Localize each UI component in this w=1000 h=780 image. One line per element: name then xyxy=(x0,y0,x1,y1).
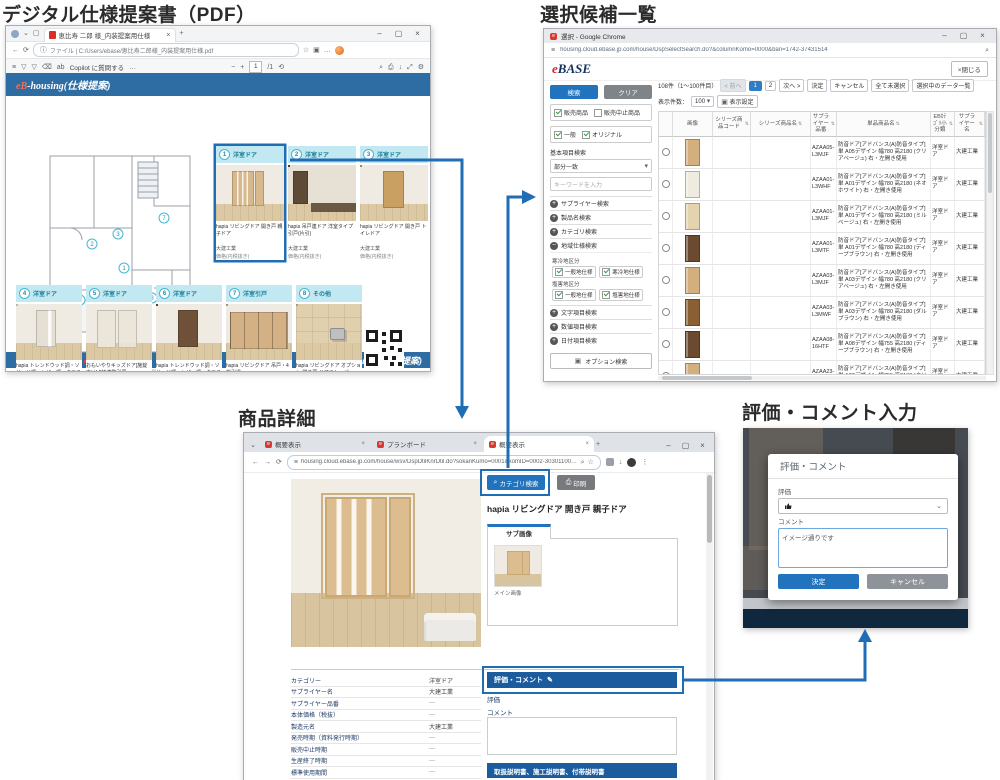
close-button[interactable]: × xyxy=(975,30,990,42)
table-row[interactable]: AZAA05-L3MJF防音ドア[アドバンス(A)防音タイプ] 単 A05デザイ… xyxy=(659,137,985,169)
comment-label: コメント xyxy=(487,707,513,717)
tab-overview-1[interactable]: e 概要表示 × xyxy=(260,436,370,452)
series-code-cell xyxy=(713,201,751,232)
window-title: 選択 - Google Chrome xyxy=(561,31,626,41)
column-header[interactable]: 画像 xyxy=(673,112,713,137)
product-card[interactable]: 6洋室ドアhapia トレンドウッド調・ソリッド調・レザー調・クロス調 リビング… xyxy=(156,285,222,372)
product-photo xyxy=(291,479,481,647)
product-name-cell: 防音ドア[アドバンス(A)防音タイプ] 単 A01デザイン 幅780 高2180… xyxy=(837,201,931,232)
series-name-cell xyxy=(751,361,811,375)
field-value: — xyxy=(429,735,435,741)
product-photo xyxy=(86,304,152,360)
card-product-name: hapia トレンドウッド調・ソリッド調・レザー調・クロス調 リビングドア 開き… xyxy=(16,363,82,372)
supplier-part-number-cell: AZAA01-L3WHF xyxy=(811,169,837,200)
product-name-cell: 防音ドア[アドバンス(A)防音タイプ] 単 A03デザイン 幅780 高2180… xyxy=(837,265,931,296)
product-thumbnail xyxy=(685,331,700,358)
category-search-button[interactable]: ⌕カテゴリ検索 xyxy=(487,475,545,490)
product-card[interactable]: 5洋室ドアおもいやりキッズドア[施錠向け] 2枚連動引戸大建工業価格(内税設定) xyxy=(86,285,152,372)
series-code-cell xyxy=(713,361,751,375)
ok-button[interactable]: 決定 xyxy=(778,574,859,589)
product-photo xyxy=(296,304,362,360)
url-text[interactable]: housing.cloud.ebase.jp.com/house/DspSele… xyxy=(560,47,980,53)
expand-icon: + xyxy=(550,309,558,317)
clear-button[interactable]: クリア xyxy=(604,85,652,99)
accordion-supplier[interactable]: +サプライヤー検索 xyxy=(550,196,652,210)
card-product-name: hapia リビングドア 開き戸 トイレドア xyxy=(360,224,428,243)
product-card[interactable]: 3洋室ドアhapia リビングドア 開き戸 トイレドア大建工業価格(内税抜き) xyxy=(360,146,428,260)
accordion-number[interactable]: +数値項目検索 xyxy=(550,319,652,333)
next-page-button[interactable]: 次へ > xyxy=(779,79,804,92)
card-price-note: 価格(内税抜き) xyxy=(216,253,284,260)
field-value: — xyxy=(429,700,435,706)
card-number: 3 xyxy=(363,149,374,160)
list-controls: 108件（1～100件目） < 前へ 1 2 次へ > 決定 キャンセル 全て未… xyxy=(658,79,986,111)
thumbnail-caption: メイン画像 xyxy=(494,589,671,597)
candidate-table: 画像シリーズ商品コード⇅シリーズ商品名⇅サプライヤー品番⇅単品商品名⇅EBｶﾃｺ… xyxy=(658,111,986,375)
category-cell: 洋室ドア xyxy=(931,329,955,360)
product-cards: 1洋室ドアhapia リビングドア 開き戸 親子ドア大建工業価格(内税抜き)2洋… xyxy=(6,26,430,372)
tune-icon: ≡ xyxy=(294,459,298,466)
product-photo xyxy=(360,165,428,221)
product-card[interactable]: 1洋室ドアhapia リビングドア 開き戸 親子ドア大建工業価格(内税抜き) xyxy=(216,146,284,260)
category-cell: 洋室ドア xyxy=(931,297,955,328)
page-favicon: e xyxy=(550,33,557,40)
titlebar: e 選択 - Google Chrome – ▢ × xyxy=(544,29,996,43)
table-row[interactable]: AZAA01-L3MTF防音ドア[アドバンス(A)防音タイプ] 単 A01デザイ… xyxy=(659,233,985,265)
sort-icon[interactable]: ⇅ xyxy=(745,121,749,127)
field-row: 本体価格（税抜）— xyxy=(291,710,481,722)
heading-pdf: デジタル仕様提案書（PDF） xyxy=(2,0,256,27)
card-number: 8 xyxy=(299,288,310,299)
search-icon[interactable]: ⌕ xyxy=(985,47,989,54)
row-radio[interactable] xyxy=(662,276,670,284)
product-name-cell: 防音ドア[アドバンス(A)防音タイプ] 単 A01デザイン 幅780 高2180… xyxy=(837,233,931,264)
field-value: — xyxy=(429,746,435,752)
series-name-cell xyxy=(751,169,811,200)
new-tab-icon[interactable]: + xyxy=(596,441,600,448)
maximize-button[interactable]: ▢ xyxy=(956,30,971,42)
option-search-button[interactable]: ▣ オプション検索 xyxy=(550,353,652,369)
supplier-name-cell: 大建工業 xyxy=(955,233,985,264)
supplier-part-number-cell: AZAA01-L3MTF xyxy=(811,233,837,264)
field-label: 製造元名 xyxy=(291,722,429,731)
ebase-favicon: e xyxy=(377,441,384,448)
tab-planboard[interactable]: e プランボード × xyxy=(372,436,482,452)
vertical-scrollbar[interactable] xyxy=(986,111,994,375)
category-cell: 洋室ドア xyxy=(931,233,955,264)
field-label: 本体価格（税抜） xyxy=(291,710,429,719)
url-bar: ← → ⟳ ≡ housing.cloud.ebase.jp.com/house… xyxy=(244,452,714,473)
checkbox-cold-cold[interactable]: 寒冷地仕様 xyxy=(599,266,643,278)
canvas: デジタル仕様提案書（PDF） 選択候補一覧 商品詳細 評価・コメント入力 ⌄ ▢… xyxy=(0,0,1000,780)
rating-dialog-panel: 評価・コメント 評価 ⌄ コメント イメージ通りです 決定 キャンセル xyxy=(743,428,968,628)
minimize-button[interactable]: – xyxy=(937,30,952,42)
search-icon: ⌕ xyxy=(494,479,498,486)
dimmed-bottom-bar xyxy=(743,609,968,628)
supplier-name-cell: 大建工業 xyxy=(955,169,985,200)
accordion-date[interactable]: +日付項目検索 xyxy=(550,333,652,347)
field-row: 生産終了時期— xyxy=(291,756,481,768)
card-number: 6 xyxy=(159,288,170,299)
column-header[interactable]: EBｶﾃｺﾞﾘ小分類⇅ xyxy=(931,112,955,137)
heading-detail: 商品詳細 xyxy=(238,404,316,431)
card-maker: 大建工業 xyxy=(360,245,428,252)
product-thumbnail xyxy=(685,235,700,262)
profile-avatar[interactable] xyxy=(627,458,636,467)
card-maker: 大建工業 xyxy=(216,245,284,252)
series-code-cell xyxy=(713,169,751,200)
cancel-button[interactable]: キャンセル xyxy=(867,574,948,589)
field-label: サプライヤー品番 xyxy=(291,699,429,708)
card-price-note: 価格(内税抜き) xyxy=(288,253,356,260)
product-name-cell: 防音ドア[アドバンス(A)防音タイプ] 単 A23デザイン 幅755 高2180… xyxy=(837,361,931,375)
card-maker: 大建工業 xyxy=(288,245,356,252)
tab-close-icon[interactable]: × xyxy=(585,441,589,447)
accordion-category[interactable]: +カテゴリ検索 xyxy=(550,224,652,238)
tab-search-icon[interactable]: ⌄ xyxy=(248,441,258,449)
series-name-cell xyxy=(751,233,811,264)
row-radio[interactable] xyxy=(662,244,670,252)
arrow-detail-to-selection xyxy=(508,197,522,468)
product-title: hapia リビングドア 開き戸 親子ドア xyxy=(487,503,678,515)
table-row[interactable]: AZAA01-L3WHF防音ドア[アドバンス(A)防音タイプ] 単 A01デザイ… xyxy=(659,169,985,201)
accordion-text[interactable]: +文字項目検索 xyxy=(550,305,652,319)
card-price-note: 価格(内税抜き) xyxy=(360,253,428,260)
product-thumbnail xyxy=(685,267,700,294)
product-thumbnail xyxy=(685,299,700,326)
sort-icon[interactable]: ⇅ xyxy=(979,121,983,127)
external-icon: ▣ xyxy=(575,358,582,365)
product-photo xyxy=(16,304,82,360)
field-label: カテゴリー xyxy=(291,676,429,685)
card-product-name: おもいやりキッズドア[施錠向け] 2枚連動引戸 xyxy=(86,363,152,372)
caret-down-icon: ▾ xyxy=(707,98,711,105)
card-tag: 4洋室ドア xyxy=(16,285,82,302)
product-photo xyxy=(288,165,356,221)
forward-icon[interactable]: → xyxy=(264,459,271,466)
heading-rating: 評価・コメント入力 xyxy=(742,398,918,425)
series-code-cell xyxy=(713,233,751,264)
field-label: 生産終了時期 xyxy=(291,756,429,765)
comment-label: コメント xyxy=(778,516,948,526)
field-label: 標準使用期間 xyxy=(291,768,429,777)
product-card[interactable]: 7洋室引戸hapia リビングドア 吊戸・4枚引違大建工業価格(内税設定) xyxy=(226,285,292,372)
supplier-part-number-cell: AZAA03-L3MWF xyxy=(811,297,837,328)
row-radio[interactable] xyxy=(662,180,670,188)
vertical-scrollbar[interactable] xyxy=(706,473,713,780)
field-row: サプライヤー品番— xyxy=(291,698,481,710)
keyword-input[interactable]: キーワードを入力 xyxy=(550,177,652,191)
column-header[interactable]: サプライヤー名⇅ xyxy=(955,112,985,137)
series-name-cell xyxy=(751,201,811,232)
supplier-part-number-cell: AZAA03-L3MJF xyxy=(811,265,837,296)
detail-right-column: ⌕カテゴリ検索 ⎙印刷 hapia リビングドア 開き戸 親子ドア サブ画像 メ… xyxy=(487,475,678,626)
result-count: 108件（1～100件目） xyxy=(658,81,717,90)
row-radio[interactable] xyxy=(662,308,670,316)
column-header[interactable]: シリーズ商品名⇅ xyxy=(751,112,811,137)
rating-comment-bar[interactable]: 評価・コメント ✎ xyxy=(487,672,677,688)
selection-window: e 選択 - Google Chrome – ▢ × ≡ housing.clo… xyxy=(543,28,997,382)
column-header[interactable]: サプライヤー品番⇅ xyxy=(811,112,837,137)
accordion-product[interactable]: +製品名検索 xyxy=(550,210,652,224)
product-thumbnail xyxy=(685,171,700,198)
bookmark-icon[interactable]: ☆ xyxy=(588,459,594,466)
divider xyxy=(291,669,679,670)
tab-strip: ⌄ e 概要表示 × e プランボード × e 概要表示 × + – ▢ × xyxy=(244,433,714,452)
select-column-header xyxy=(659,112,673,137)
supplier-name-cell: 大建工業 xyxy=(955,361,985,375)
table-row[interactable]: AZAA03-L3MWF防音ドア[アドバンス(A)防音タイプ] 単 A03デザイ… xyxy=(659,297,985,329)
ebase-logo: eBASE xyxy=(552,61,591,77)
app-header: eBASE ×閉じる xyxy=(544,58,996,81)
series-name-cell xyxy=(751,137,811,168)
card-number: 7 xyxy=(229,288,240,299)
product-name-cell: 防音ドア[アドバンス(A)防音タイプ] 単 A05デザイン 幅780 高2180… xyxy=(837,137,931,168)
rating-label: 評価 xyxy=(487,694,500,704)
comment-textarea[interactable]: イメージ通りです xyxy=(778,528,948,568)
sofa xyxy=(424,613,476,641)
sort-icon[interactable]: ⇅ xyxy=(896,121,900,127)
salt-region-label: 塩害地区分 xyxy=(552,280,652,288)
table-body: AZAA05-L3MJF防音ドア[アドバンス(A)防音タイプ] 単 A05デザイ… xyxy=(659,137,985,375)
category-cell: 洋室ドア xyxy=(931,201,955,232)
prev-page-button[interactable]: < 前へ xyxy=(720,79,745,92)
url-bar: ≡ housing.cloud.ebase.jp.com/house/DspSe… xyxy=(544,43,996,58)
display-settings-button[interactable]: ▣ 表示設定 xyxy=(717,95,757,108)
field-row: 販売中止時期— xyxy=(291,744,481,756)
pencil-icon: ✎ xyxy=(547,677,553,684)
rating-label: 評価 xyxy=(778,486,948,496)
checkbox-salt-salt[interactable]: 塩害地仕様 xyxy=(599,289,643,301)
close-page-button[interactable]: ×閉じる xyxy=(951,61,988,77)
checkbox-salt-general[interactable]: 一般地仕様 xyxy=(552,289,596,301)
card-tag: 5洋室ドア xyxy=(86,285,152,302)
category-cell: 洋室ドア xyxy=(931,137,955,168)
table-row[interactable]: AZAA01-L3MJF防音ドア[アドバンス(A)防音タイプ] 単 A01デザイ… xyxy=(659,201,985,233)
collapse-icon: − xyxy=(550,242,558,250)
supplier-name-cell: 大建工業 xyxy=(955,329,985,360)
checkbox-general[interactable]: 一般 xyxy=(554,130,576,139)
caret-down-icon: ⌄ xyxy=(936,503,942,510)
category-cell: 洋室ドア xyxy=(931,361,955,375)
pdf-viewer-window: ⌄ ▢ 恵比寿 二郎 様_内装提案用仕様 × + – ▢ × ← ⟳ ⓘ ファイ… xyxy=(5,25,431,372)
extensions-icon[interactable] xyxy=(606,458,614,466)
field-row: 標準使用期間— xyxy=(291,767,481,779)
tune-icon[interactable]: ≡ xyxy=(551,47,555,54)
address-field[interactable]: ≡ housing.cloud.ebase.jp.com/house/wsv/D… xyxy=(287,455,601,470)
page-1-button[interactable]: 1 xyxy=(749,81,762,91)
print-icon: ⎙ xyxy=(566,479,572,486)
product-thumbnail xyxy=(685,139,700,166)
display-settings-icon: ▣ xyxy=(721,99,728,106)
card-tag: 2洋室ドア xyxy=(288,146,356,163)
print-button[interactable]: ⎙印刷 xyxy=(557,475,595,490)
region-filters: 寒冷地区分 一般地仕様 寒冷地仕様 塩害地区分 一般地仕様 塩害地仕様 xyxy=(550,252,652,305)
table-row[interactable]: AZAA03-L3MJF防音ドア[アドバンス(A)防音タイプ] 単 A03デザイ… xyxy=(659,265,985,297)
field-value: — xyxy=(429,758,435,764)
series-code-cell xyxy=(713,329,751,360)
product-name-cell: 防音ドア[アドバンス(A)防音タイプ] 単 A01デザイン 幅780 高2180… xyxy=(837,169,931,200)
card-product-name: hapia リビングドア 開き戸 親子ドア xyxy=(216,224,284,243)
product-card[interactable]: 4洋室ドアhapia トレンドウッド調・ソリッド調・レザー調・クロス調 リビング… xyxy=(16,285,82,372)
table-header-row: 画像シリーズ商品コード⇅シリーズ商品名⇅サプライヤー品番⇅単品商品名⇅EBｶﾃｺ… xyxy=(659,112,985,137)
accordion-region[interactable]: −地域仕様検索 xyxy=(550,238,652,252)
menu-icon[interactable]: ⋮ xyxy=(641,459,648,466)
field-label: 発売時期（資料発行時期） xyxy=(291,733,429,742)
cold-region-label: 寒冷地区分 xyxy=(552,257,652,265)
series-code-cell xyxy=(713,265,751,296)
horizontal-scrollbar[interactable] xyxy=(658,376,986,380)
card-number: 1 xyxy=(219,149,230,160)
rating-dialog: 評価・コメント 評価 ⌄ コメント イメージ通りです 決定 キャンセル xyxy=(768,454,958,600)
page-2-button[interactable]: 2 xyxy=(765,81,776,91)
expand-icon: + xyxy=(550,337,558,345)
rating-select[interactable]: ⌄ xyxy=(778,498,948,514)
field-label: サプライヤー名 xyxy=(291,687,429,696)
cancel-button[interactable]: キャンセル xyxy=(830,79,868,92)
checkbox-on-sale[interactable]: 販売商品 xyxy=(554,108,588,117)
checkbox-original[interactable]: オリジナル xyxy=(582,130,622,139)
download-icon[interactable]: ↓ xyxy=(619,459,623,466)
series-code-cell xyxy=(713,297,751,328)
supplier-name-cell: 大建工業 xyxy=(955,137,985,168)
detail-window: ⌄ e 概要表示 × e プランボード × e 概要表示 × + – ▢ × xyxy=(243,432,715,780)
card-tag: 8その他 xyxy=(296,285,362,302)
row-radio[interactable] xyxy=(662,372,670,375)
comment-display-box xyxy=(487,717,677,755)
tab-close-icon[interactable]: × xyxy=(361,441,365,447)
product-name-cell: 防音ドア[アドバンス(A)防音タイプ] 単 A03デザイン 幅780 高2180… xyxy=(837,297,931,328)
close-button[interactable]: × xyxy=(695,440,710,452)
card-product-name: hapia リビングドア オプション 開き戸 ドアストッパー xyxy=(296,363,362,372)
sub-image-tab[interactable]: サブ画像 xyxy=(487,524,551,539)
search-sidebar: 検索 クリア 販売商品 販売中止商品 一般 オリジナル 基本項目検索 部分一致 … xyxy=(550,85,652,369)
product-name-cell: 防音ドア[アドバンス(A)防音タイプ] 単 A08デザイン 幅755 高2180… xyxy=(837,329,931,360)
field-value: — xyxy=(429,712,435,718)
category-cell: 洋室ドア xyxy=(931,265,955,296)
match-type-select[interactable]: 部分一致 ▾ xyxy=(550,159,652,173)
sort-icon[interactable]: ⇅ xyxy=(798,121,802,127)
row-radio[interactable] xyxy=(662,212,670,220)
supplier-name-cell: 大建工業 xyxy=(955,201,985,232)
card-number: 4 xyxy=(19,288,30,299)
decide-button[interactable]: 決定 xyxy=(807,79,827,92)
sub-image-thumbnail[interactable] xyxy=(494,545,542,587)
expand-icon: + xyxy=(550,200,558,208)
checkbox-cold-general[interactable]: 一般地仕様 xyxy=(552,266,596,278)
search-icon[interactable]: ⌕ xyxy=(581,459,585,466)
field-row: 発売時期（資料発行時期）— xyxy=(291,733,481,745)
per-page-select[interactable]: 100 ▾ xyxy=(691,96,714,107)
supplier-part-number-cell: AZAA08-16HTF xyxy=(811,329,837,360)
tab-overview-2[interactable]: e 概要表示 × xyxy=(484,436,594,452)
card-tag: 6洋室ドア xyxy=(156,285,222,302)
series-code-cell xyxy=(713,137,751,168)
product-card[interactable]: 2洋室ドアhapia 吊戸連ドア 洋室タイプ 引戸(片引)大建工業価格(内税抜き… xyxy=(288,146,356,260)
sort-icon[interactable]: ⇅ xyxy=(831,121,835,127)
manuals-bar[interactable]: 取扱説明書、施工説明書、付帯説明書 xyxy=(487,763,677,778)
card-product-name: hapia トレンドウッド調・ソリッド調・レザー調・クロス調 リビングドア 開き… xyxy=(156,363,222,372)
card-tag: 1洋室ドア xyxy=(216,146,284,163)
category-cell: 洋室ドア xyxy=(931,169,955,200)
card-product-name: hapia 吊戸連ドア 洋室タイプ 引戸(片引) xyxy=(288,224,356,243)
product-card[interactable]: 8その他hapia リビングドア オプション 開き戸 ドアストッパー大建工業価格… xyxy=(296,285,362,372)
sub-image-panel: メイン画像 xyxy=(487,538,678,626)
column-header[interactable]: 単品商品名⇅ xyxy=(837,112,931,137)
supplier-part-number-cell: AZAA01-L3MJF xyxy=(811,201,837,232)
selected-list-button[interactable]: 選択中のデータ一覧 xyxy=(912,79,974,92)
thumbs-up-icon xyxy=(784,502,792,510)
row-radio[interactable] xyxy=(662,148,670,156)
product-thumbnail xyxy=(685,363,700,375)
column-header[interactable]: シリーズ商品コード⇅ xyxy=(713,112,751,137)
product-photo xyxy=(226,304,292,360)
expand-icon: + xyxy=(550,214,558,222)
field-row: サプライヤー名大建工業 xyxy=(291,687,481,699)
minimize-button[interactable]: – xyxy=(661,440,676,452)
product-fields: カテゴリー洋室ドアサプライヤー名大建工業サプライヤー品番—本体価格（税抜）—製造… xyxy=(291,675,481,780)
table-row[interactable]: AZAA23-L4MJF防音ドア[アドバンス(A)防音タイプ] 単 A23デザイ… xyxy=(659,361,985,375)
series-name-cell xyxy=(751,329,811,360)
supplier-part-number-cell: AZAA05-L3MJF xyxy=(811,137,837,168)
card-tag: 7洋室引戸 xyxy=(226,285,292,302)
series-name-cell xyxy=(751,265,811,296)
field-row: 製造元名大建工業 xyxy=(291,721,481,733)
per-page-label: 表示件数： xyxy=(658,97,688,106)
tab-close-icon[interactable]: × xyxy=(473,441,477,447)
expand-icon: + xyxy=(550,323,558,331)
field-value: — xyxy=(429,769,435,775)
supplier-part-number-cell: AZAA23-L4MJF xyxy=(811,361,837,375)
basic-search-label: 基本項目検索 xyxy=(550,148,652,157)
expand-icon: + xyxy=(550,228,558,236)
row-radio[interactable] xyxy=(662,340,670,348)
table-row[interactable]: AZAA08-16HTF防音ドア[アドバンス(A)防音タイプ] 単 A08デザイ… xyxy=(659,329,985,361)
unselect-all-button[interactable]: 全て未選択 xyxy=(871,79,909,92)
product-photo xyxy=(216,165,284,221)
field-value: 大建工業 xyxy=(429,687,453,696)
product-thumbnail xyxy=(685,203,700,230)
field-label: 販売中止時期 xyxy=(291,745,429,754)
supplier-name-cell: 大建工業 xyxy=(955,265,985,296)
field-row: カテゴリー洋室ドア xyxy=(291,675,481,687)
ebase-favicon: e xyxy=(265,441,272,448)
supplier-name-cell: 大建工業 xyxy=(955,297,985,328)
pdf-document: eB-housing(仕様提案) eB-housing(仕様提案) xyxy=(6,73,430,371)
refresh-icon[interactable]: ⟳ xyxy=(276,459,282,466)
field-value: 洋室ドア xyxy=(429,676,453,685)
caret-down-icon: ▾ xyxy=(644,163,648,170)
product-photo xyxy=(156,304,222,360)
card-number: 2 xyxy=(291,149,302,160)
ebase-favicon: e xyxy=(489,441,496,448)
field-value: 大建工業 xyxy=(429,722,453,731)
checkbox-discontinued[interactable]: 販売中止商品 xyxy=(594,108,640,117)
search-button[interactable]: 検索 xyxy=(550,85,598,99)
heading-selection: 選択候補一覧 xyxy=(540,0,657,27)
sort-icon[interactable]: ⇅ xyxy=(949,121,953,127)
card-number: 5 xyxy=(89,288,100,299)
dialog-title: 評価・コメント xyxy=(768,454,958,479)
maximize-button[interactable]: ▢ xyxy=(678,440,693,452)
card-tag: 3洋室ドア xyxy=(360,146,428,163)
url-text: housing.cloud.ebase.jp.com/house/wsv/Dsp… xyxy=(301,459,578,465)
back-icon[interactable]: ← xyxy=(252,459,259,466)
series-name-cell xyxy=(751,297,811,328)
card-product-name: hapia リビングドア 吊戸・4枚引違 xyxy=(226,363,292,372)
